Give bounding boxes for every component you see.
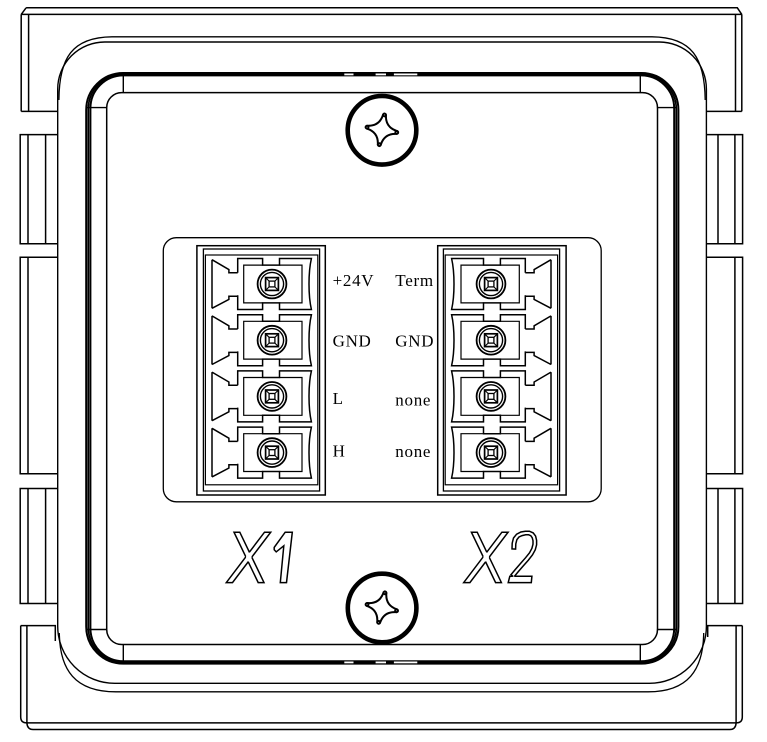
svg-text:none: none [395, 391, 431, 410]
svg-text:Term: Term [395, 271, 434, 290]
svg-text:GND: GND [395, 331, 434, 350]
svg-text:none: none [395, 442, 431, 461]
svg-text:+24V: +24V [333, 271, 375, 290]
svg-text:H: H [333, 442, 346, 461]
svg-text:L: L [333, 389, 344, 408]
svg-text:GND: GND [333, 331, 372, 350]
